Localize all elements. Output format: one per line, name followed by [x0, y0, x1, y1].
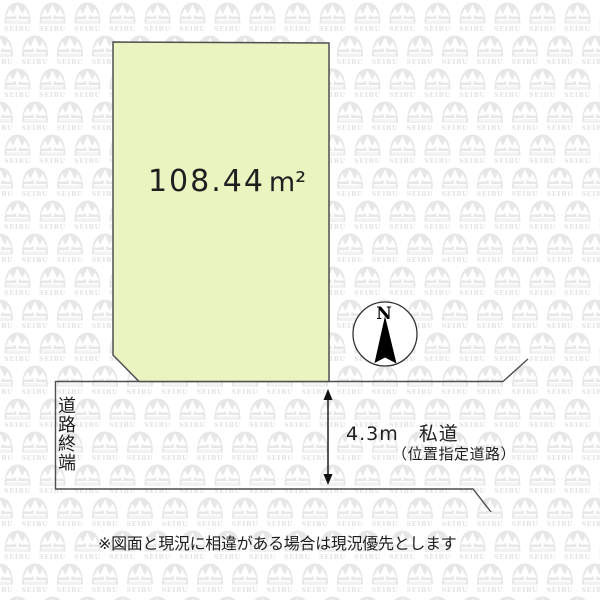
diagram-linework: N: [0, 0, 600, 600]
road-type-label: （位置指定道路）: [392, 443, 516, 464]
compass-north-label: N: [376, 304, 392, 324]
plot-area-value: 108.44: [148, 164, 265, 199]
disclaimer-text: ※図面と現況に相違がある場合は現況優先とします: [98, 530, 457, 554]
road-width-label: 4.3m 私道: [346, 419, 459, 446]
plot-polygon: [113, 42, 329, 382]
road-width-arrow: [324, 389, 333, 485]
plot-area-label: 108.44m²: [120, 164, 334, 199]
road-dead-end-label: 道路終端: [56, 396, 74, 472]
compass: N: [353, 302, 417, 366]
land-plot-diagram: SEIBU N 108.44m²: [0, 0, 600, 600]
plot-area-unit: m²: [269, 167, 306, 198]
